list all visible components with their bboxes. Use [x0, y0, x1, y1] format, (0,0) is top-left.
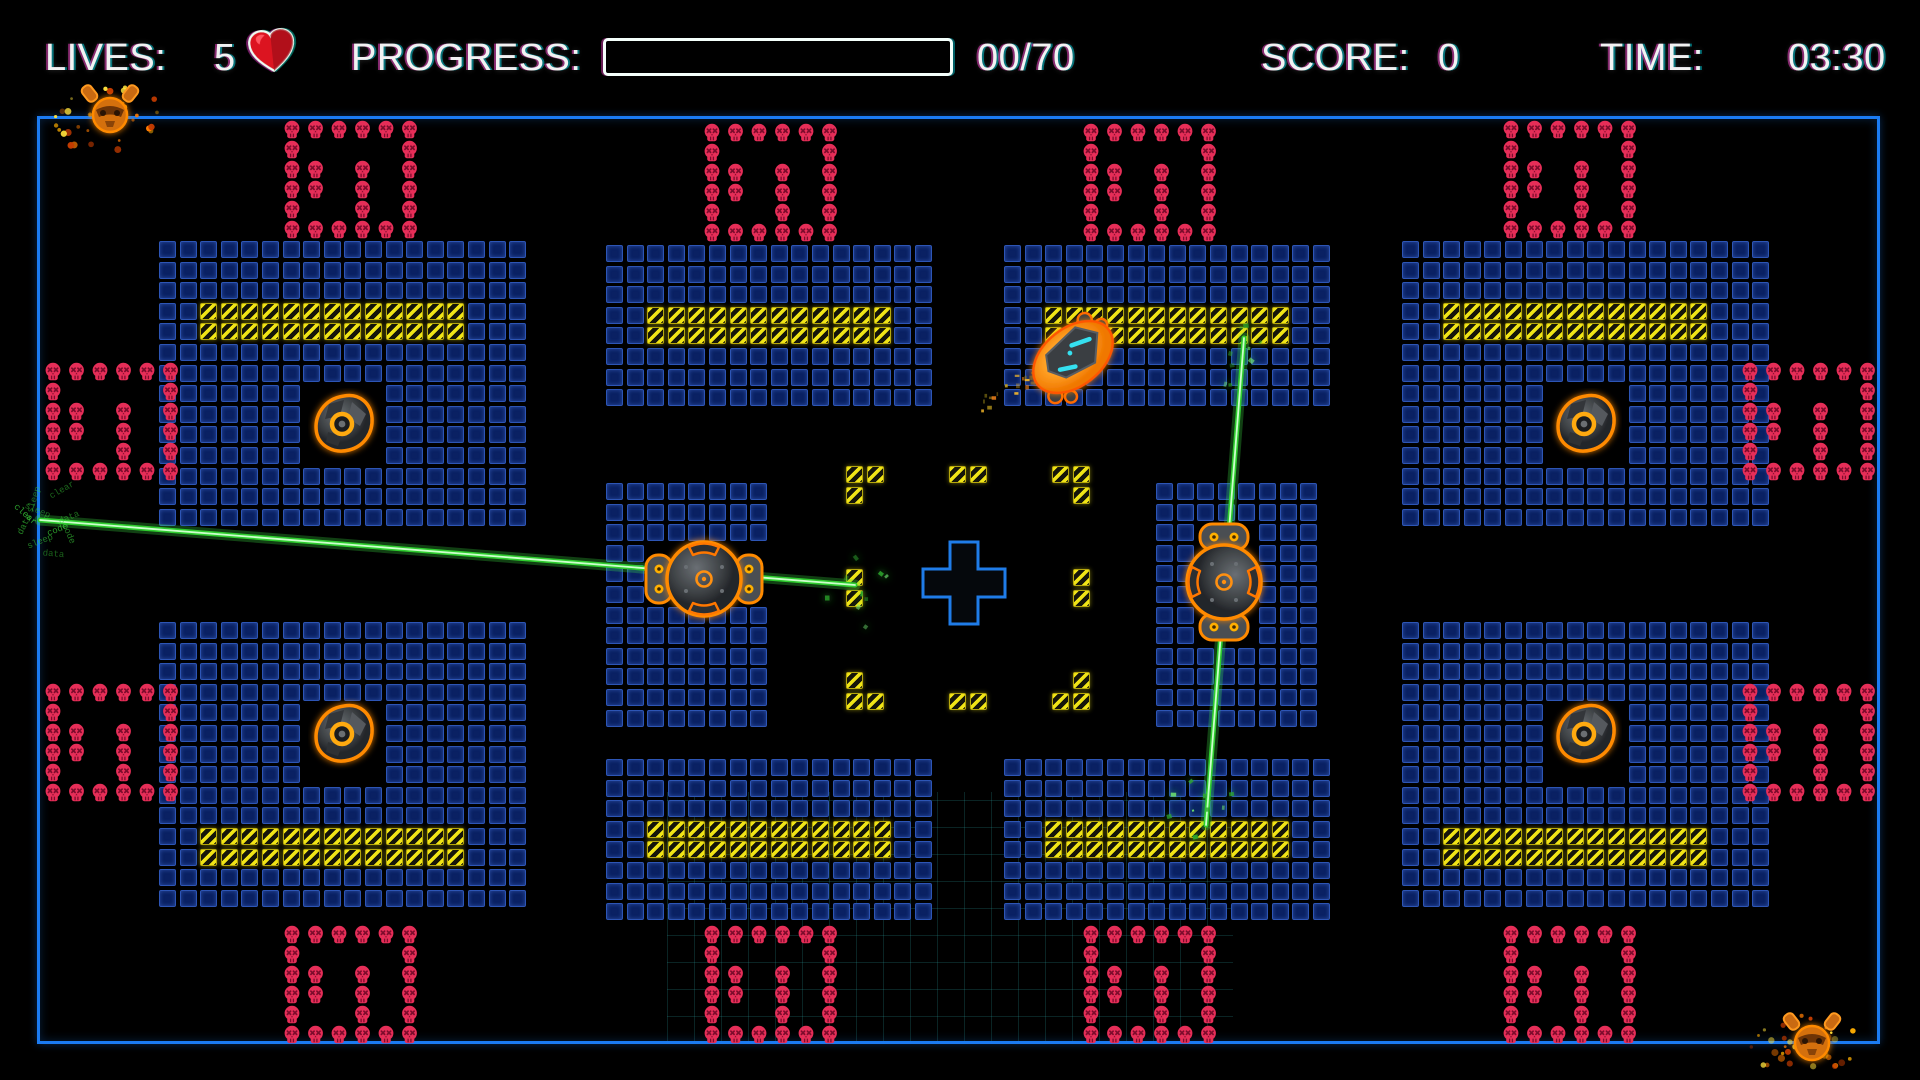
blue-tile: [1280, 627, 1297, 644]
hazard-tile: [1148, 821, 1165, 838]
blue-tile: [1670, 766, 1687, 783]
blue-tile: [606, 710, 623, 727]
blue-tile: [427, 488, 444, 505]
blue-tile: [1107, 286, 1124, 303]
blue-tile: [688, 524, 705, 541]
blue-tile: [915, 245, 932, 262]
blue-tile: [1292, 327, 1309, 344]
blue-tile: [427, 869, 444, 886]
blue-tile: [1690, 890, 1707, 907]
hazard-tile: [1045, 327, 1062, 344]
hazard-tile: [406, 323, 423, 340]
blue-tile: [606, 780, 623, 797]
blue-tile: [1045, 245, 1062, 262]
blue-tile: [468, 684, 485, 701]
blue-tile: [221, 282, 238, 299]
blue-tile: [1066, 286, 1083, 303]
blue-tile: [1567, 365, 1584, 382]
blue-tile: [1711, 787, 1728, 804]
blue-tile: [489, 663, 506, 680]
blue-tile: [1567, 468, 1584, 485]
blue-tile: [1752, 828, 1769, 845]
blue-tile: [1272, 245, 1289, 262]
hazard-tile: [1526, 849, 1543, 866]
blue-tile: [853, 759, 870, 776]
blue-tile: [1670, 365, 1687, 382]
blue-tile: [1148, 903, 1165, 920]
blue-tile: [791, 389, 808, 406]
blue-tile: [1423, 406, 1440, 423]
blue-tile: [1292, 800, 1309, 817]
blue-tile: [386, 488, 403, 505]
blue-tile: [1587, 869, 1604, 886]
blue-tile: [427, 684, 444, 701]
blue-tile: [1402, 663, 1419, 680]
blue-tile: [303, 365, 320, 382]
blue-tile: [468, 282, 485, 299]
blue-tile: [1423, 787, 1440, 804]
blue-tile: [489, 787, 506, 804]
hazard-tile: [1169, 327, 1186, 344]
blue-tile: [750, 710, 767, 727]
hazard-tile: [1629, 323, 1646, 340]
blue-tile: [606, 369, 623, 386]
blue-tile: [406, 262, 423, 279]
blue-tile: [668, 759, 685, 776]
blue-tile: [1189, 903, 1206, 920]
blue-tile: [1732, 807, 1749, 824]
hazard-tile: [812, 841, 829, 858]
blue-tile: [1004, 800, 1021, 817]
blue-tile: [1526, 622, 1543, 639]
blue-tile: [1169, 286, 1186, 303]
blue-tile: [1156, 607, 1173, 624]
blue-tile: [668, 689, 685, 706]
blue-tile: [427, 643, 444, 660]
blue-tile: [668, 348, 685, 365]
blue-tile: [915, 307, 932, 324]
blue-tile: [668, 862, 685, 879]
blue-tile: [1711, 890, 1728, 907]
blue-tile: [1272, 759, 1289, 776]
blue-tile: [1066, 369, 1083, 386]
blue-tile: [1711, 488, 1728, 505]
hazard-tile: [688, 841, 705, 858]
blue-tile: [1649, 704, 1666, 721]
blue-tile: [1292, 759, 1309, 776]
blue-tile: [606, 266, 623, 283]
blue-tile: [447, 622, 464, 639]
blue-tile: [509, 787, 526, 804]
blue-tile: [1251, 862, 1268, 879]
blue-tile: [406, 643, 423, 660]
blue-tile: [1484, 509, 1501, 526]
hazard-tile: [1128, 821, 1145, 838]
blue-tile: [688, 348, 705, 365]
blue-tile: [344, 643, 361, 660]
blue-tile: [303, 663, 320, 680]
blue-tile: [509, 303, 526, 320]
blue-tile: [427, 447, 444, 464]
blue-tile: [1423, 344, 1440, 361]
blue-tile: [1128, 266, 1145, 283]
blue-tile: [1300, 627, 1317, 644]
blue-tile: [1402, 262, 1419, 279]
blue-tile: [1238, 648, 1255, 665]
blue-tile: [1732, 468, 1749, 485]
hazard-tile: [1608, 323, 1625, 340]
blue-tile: [791, 245, 808, 262]
hazard-tile: [365, 828, 382, 845]
hazard-tile: [427, 849, 444, 866]
blue-tile: [1443, 766, 1460, 783]
blue-tile: [1505, 684, 1522, 701]
blue-tile: [365, 663, 382, 680]
hazard-tile: [1231, 821, 1248, 838]
hazard-tile: [200, 303, 217, 320]
blue-tile: [221, 406, 238, 423]
blue-tile: [1189, 883, 1206, 900]
blue-tile: [159, 684, 176, 701]
blue-tile: [406, 725, 423, 742]
blue-tile: [1443, 869, 1460, 886]
blue-tile: [1711, 262, 1728, 279]
blue-tile: [447, 746, 464, 763]
blue-tile: [180, 890, 197, 907]
blue-tile: [303, 262, 320, 279]
blue-tile: [509, 406, 526, 423]
blue-tile: [627, 565, 644, 582]
blue-tile: [447, 807, 464, 824]
blue-tile: [1259, 648, 1276, 665]
hazard-tile: [1066, 821, 1083, 838]
hazard-tile: [1587, 849, 1604, 866]
blue-tile: [1251, 245, 1268, 262]
blue-tile: [283, 787, 300, 804]
blue-tile: [386, 262, 403, 279]
blue-tile: [1025, 883, 1042, 900]
blue-tile: [447, 385, 464, 402]
blue-tile: [1649, 746, 1666, 763]
blue-tile: [180, 622, 197, 639]
blue-tile: [1004, 759, 1021, 776]
blue-tile: [1004, 883, 1021, 900]
blue-tile: [1423, 766, 1440, 783]
blue-tile: [1300, 504, 1317, 521]
blue-tile: [1086, 759, 1103, 776]
blue-tile: [1045, 369, 1062, 386]
blue-tile: [489, 684, 506, 701]
blue-tile: [447, 241, 464, 258]
blue-tile: [283, 869, 300, 886]
blue-tile: [1025, 841, 1042, 858]
blue-tile: [1402, 303, 1419, 320]
blue-tile: [180, 849, 197, 866]
blue-tile: [1608, 807, 1625, 824]
blue-tile: [709, 483, 726, 500]
blue-tile: [262, 385, 279, 402]
blue-tile: [406, 807, 423, 824]
blue-tile: [853, 245, 870, 262]
blue-tile: [200, 622, 217, 639]
hazard-tile: [750, 821, 767, 838]
blue-tile: [1526, 262, 1543, 279]
blue-tile: [1197, 648, 1214, 665]
hazard-tile: [1073, 672, 1090, 689]
hazard-tile: [750, 327, 767, 344]
blue-tile: [180, 344, 197, 361]
blue-tile: [1004, 307, 1021, 324]
hazard-tile: [1484, 828, 1501, 845]
blue-tile: [1464, 869, 1481, 886]
blue-tile: [180, 282, 197, 299]
hazard-tile: [221, 303, 238, 320]
blue-tile: [1732, 890, 1749, 907]
blue-tile: [200, 869, 217, 886]
blue-tile: [1711, 725, 1728, 742]
blue-tile: [1732, 622, 1749, 639]
blue-tile: [221, 643, 238, 660]
blue-tile: [1464, 385, 1481, 402]
blue-tile: [468, 725, 485, 742]
blue-tile: [1231, 780, 1248, 797]
blue-tile: [1231, 266, 1248, 283]
blue-tile: [1443, 890, 1460, 907]
hazard-tile: [1052, 466, 1069, 483]
blue-tile: [1218, 483, 1235, 500]
blue-tile: [324, 241, 341, 258]
blue-tile: [812, 759, 829, 776]
blue-tile: [1025, 307, 1042, 324]
blue-tile: [489, 262, 506, 279]
hazard-tile: [1443, 323, 1460, 340]
blue-tile: [1505, 787, 1522, 804]
blue-tile: [1670, 241, 1687, 258]
blue-tile: [1156, 545, 1173, 562]
blue-tile: [283, 282, 300, 299]
hazard-tile: [365, 323, 382, 340]
blue-tile: [1711, 684, 1728, 701]
blue-tile: [1066, 800, 1083, 817]
blue-tile: [509, 447, 526, 464]
blue-tile: [386, 241, 403, 258]
blue-tile: [1484, 344, 1501, 361]
blue-tile: [283, 241, 300, 258]
blue-tile: [468, 426, 485, 443]
blue-tile: [283, 704, 300, 721]
blue-tile: [1629, 663, 1646, 680]
blue-tile: [647, 668, 664, 685]
blue-tile: [812, 266, 829, 283]
blue-tile: [1189, 369, 1206, 386]
hazard-tile: [1649, 828, 1666, 845]
blue-tile: [386, 282, 403, 299]
blue-tile: [1292, 389, 1309, 406]
blue-tile: [447, 365, 464, 382]
blue-tile: [283, 622, 300, 639]
blue-tile: [1025, 780, 1042, 797]
blue-tile: [688, 689, 705, 706]
blue-tile: [1259, 524, 1276, 541]
hazard-tile: [1690, 323, 1707, 340]
blue-tile: [1649, 509, 1666, 526]
blue-tile: [1292, 348, 1309, 365]
blue-tile: [427, 262, 444, 279]
blue-tile: [730, 348, 747, 365]
blue-tile: [1025, 245, 1042, 262]
blue-tile: [344, 869, 361, 886]
blue-tile: [1128, 883, 1145, 900]
blue-tile: [1629, 807, 1646, 824]
blue-tile: [1464, 447, 1481, 464]
hazard-tile: [427, 323, 444, 340]
blue-tile: [853, 286, 870, 303]
blue-tile: [1587, 622, 1604, 639]
blue-tile: [1107, 903, 1124, 920]
blue-tile: [303, 869, 320, 886]
blue-tile: [489, 725, 506, 742]
blue-tile: [180, 509, 197, 526]
blue-tile: [1025, 759, 1042, 776]
blue-tile: [1649, 488, 1666, 505]
blue-tile: [1670, 447, 1687, 464]
blue-tile: [1231, 903, 1248, 920]
blue-tile: [709, 369, 726, 386]
blue-tile: [489, 869, 506, 886]
blue-tile: [771, 266, 788, 283]
blue-tile: [1272, 883, 1289, 900]
blue-tile: [1197, 710, 1214, 727]
blue-tile: [1313, 389, 1330, 406]
blue-tile: [1732, 344, 1749, 361]
blue-tile: [1484, 488, 1501, 505]
blue-tile: [606, 245, 623, 262]
blue-tile: [1484, 262, 1501, 279]
blue-tile: [447, 663, 464, 680]
blue-tile: [688, 266, 705, 283]
blue-tile: [1732, 323, 1749, 340]
blue-tile: [1649, 807, 1666, 824]
blue-tile: [1629, 643, 1646, 660]
hazard-tile: [853, 327, 870, 344]
blue-tile: [1587, 241, 1604, 258]
blue-tile: [833, 862, 850, 879]
blue-tile: [221, 365, 238, 382]
blue-tile: [262, 344, 279, 361]
blue-tile: [606, 841, 623, 858]
blue-tile: [1505, 622, 1522, 639]
hazard-tile: [324, 849, 341, 866]
blue-tile: [1567, 241, 1584, 258]
blue-tile: [627, 627, 644, 644]
hazard-tile: [283, 303, 300, 320]
blue-tile: [1197, 689, 1214, 706]
blue-tile: [1128, 369, 1145, 386]
blue-tile: [180, 828, 197, 845]
blue-tile: [668, 524, 685, 541]
blue-tile: [489, 807, 506, 824]
blue-tile: [241, 385, 258, 402]
blue-tile: [647, 689, 664, 706]
blue-tile: [241, 766, 258, 783]
blue-tile: [1313, 266, 1330, 283]
blue-tile: [241, 807, 258, 824]
blue-tile: [1690, 807, 1707, 824]
blue-tile: [1464, 241, 1481, 258]
hazard-tile: [1690, 849, 1707, 866]
blue-tile: [1272, 800, 1289, 817]
blue-tile: [894, 883, 911, 900]
blue-tile: [468, 828, 485, 845]
blue-tile: [1732, 746, 1749, 763]
blue-tile: [324, 282, 341, 299]
hazard-tile: [1670, 849, 1687, 866]
blue-tile: [468, 704, 485, 721]
blue-tile: [468, 385, 485, 402]
blue-tile: [750, 800, 767, 817]
blue-tile: [365, 344, 382, 361]
blue-tile: [1567, 869, 1584, 886]
blue-tile: [159, 365, 176, 382]
blue-tile: [447, 890, 464, 907]
blue-tile: [1505, 344, 1522, 361]
blue-tile: [1670, 890, 1687, 907]
blue-tile: [668, 369, 685, 386]
blue-tile: [1567, 262, 1584, 279]
blue-tile: [1231, 369, 1248, 386]
hazard-tile: [1128, 307, 1145, 324]
blue-tile: [1197, 483, 1214, 500]
blue-tile: [1066, 245, 1083, 262]
blue-tile: [447, 344, 464, 361]
hazard-tile: [1073, 466, 1090, 483]
blue-tile: [1231, 800, 1248, 817]
blue-tile: [1402, 282, 1419, 299]
hazard-tile: [1608, 303, 1625, 320]
blue-tile: [509, 385, 526, 402]
blue-tile: [1505, 509, 1522, 526]
blue-tile: [750, 883, 767, 900]
blue-tile: [1505, 282, 1522, 299]
blue-tile: [1505, 488, 1522, 505]
blue-tile: [1649, 344, 1666, 361]
blue-tile: [894, 780, 911, 797]
blue-tile: [1587, 643, 1604, 660]
blue-tile: [750, 689, 767, 706]
blue-tile: [1484, 426, 1501, 443]
blue-tile: [1546, 509, 1563, 526]
hazard-tile: [241, 849, 258, 866]
blue-tile: [1280, 504, 1297, 521]
blue-tile: [324, 890, 341, 907]
blue-tile: [386, 725, 403, 742]
blue-tile: [1259, 668, 1276, 685]
blue-tile: [647, 780, 664, 797]
blue-tile: [1128, 903, 1145, 920]
hazard-tile: [688, 307, 705, 324]
blue-tile: [1402, 622, 1419, 639]
blue-tile: [771, 286, 788, 303]
blue-tile: [1443, 468, 1460, 485]
blue-tile: [468, 323, 485, 340]
hazard-tile: [668, 307, 685, 324]
blue-tile: [386, 447, 403, 464]
blue-tile: [647, 369, 664, 386]
blue-tile: [447, 509, 464, 526]
blue-tile: [750, 607, 767, 624]
blue-tile: [283, 447, 300, 464]
blue-tile: [1526, 684, 1543, 701]
